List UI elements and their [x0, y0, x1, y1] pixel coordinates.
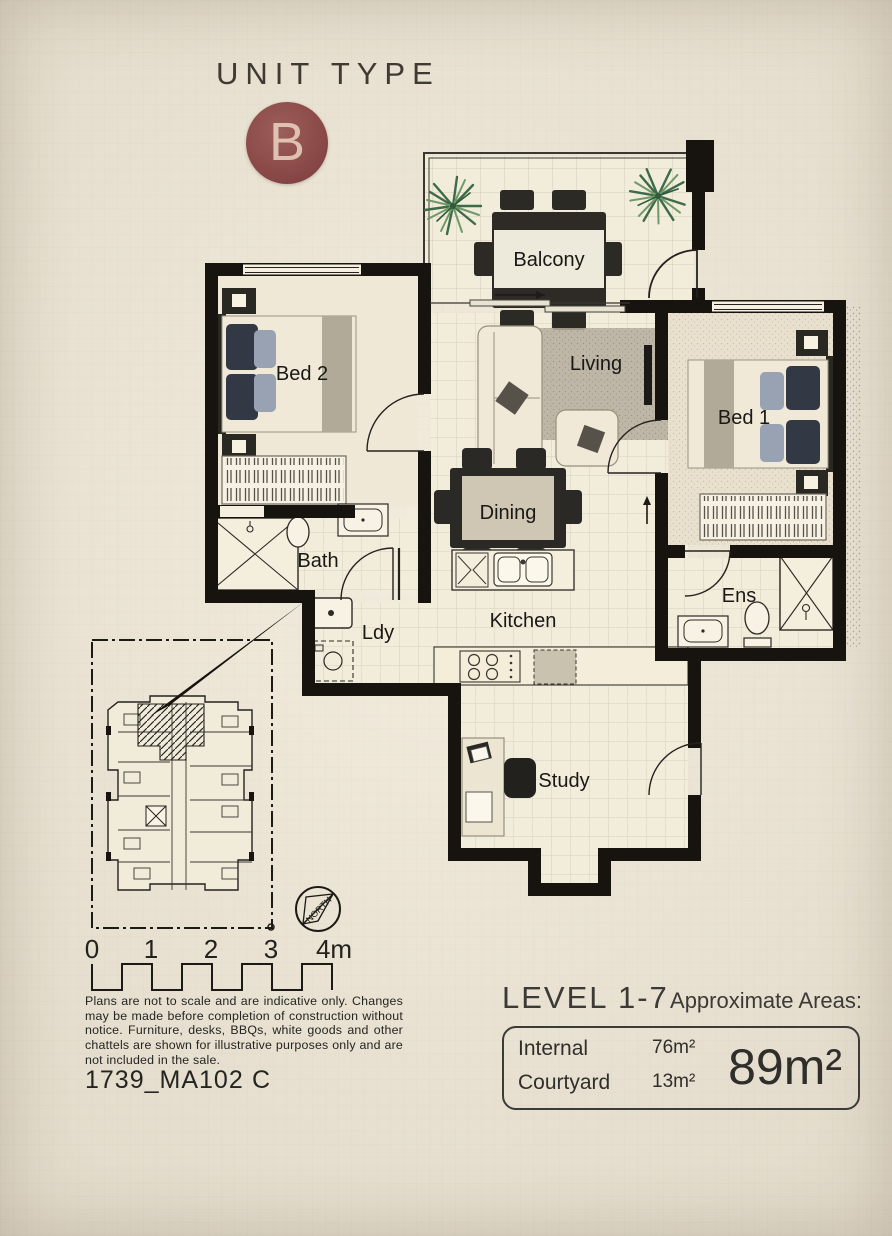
desk-chair — [504, 758, 536, 798]
pillow — [760, 372, 784, 410]
pillow — [254, 330, 276, 368]
pillow — [254, 374, 276, 412]
study-nook-floor — [541, 848, 598, 884]
double-sink — [494, 553, 552, 586]
dishwasher — [456, 553, 488, 587]
room-label-ens: Ens — [722, 585, 756, 607]
linen-niche — [220, 506, 264, 517]
pillow — [786, 366, 820, 410]
scale-bar: 0 1 2 3 4m — [85, 934, 352, 990]
key-plan-leader — [150, 601, 305, 716]
floor-plan-page: UNIT TYPE B — [0, 0, 892, 1236]
disclaimer-text: Plans are not to scale and are indicativ… — [85, 994, 403, 1067]
room-label-bed1: Bed 1 — [718, 407, 770, 429]
scale-bar-ruler — [92, 964, 332, 990]
room-label-kitchen: Kitchen — [490, 610, 557, 632]
area-row-label: Courtyard — [518, 1071, 610, 1095]
room-label-living: Living — [570, 353, 622, 375]
exterior-shadow — [846, 306, 861, 648]
bed1-furniture — [688, 330, 835, 540]
room-label-balcony: Balcony — [513, 249, 584, 271]
revision-letter: C — [252, 1066, 270, 1095]
pillow — [786, 420, 820, 464]
north-arrow-icon: NORTH — [296, 887, 340, 931]
area-row-value: 13m² — [652, 1071, 695, 1093]
room-label-dining: Dining — [480, 502, 537, 524]
fridge — [534, 650, 576, 684]
scale-tick: 0 — [85, 934, 99, 964]
toilet-cistern — [744, 638, 771, 647]
approximate-areas-heading: Approximate Areas: — [670, 988, 862, 1014]
toilet — [287, 517, 309, 547]
room-label-bath: Bath — [297, 550, 338, 572]
laptop — [466, 792, 492, 822]
room-label-ldy: Ldy — [362, 622, 394, 644]
tv — [644, 345, 652, 405]
areas-box: Internal 76m² Courtyard 13m² 89m² — [502, 1026, 860, 1110]
scale-tick: 3 — [264, 934, 278, 964]
pillow — [226, 324, 258, 370]
area-row-value: 76m² — [652, 1037, 695, 1059]
room-label-study: Study — [538, 770, 589, 792]
scale-tick: 4m — [316, 934, 352, 964]
scale-ticks: 0 1 2 3 4m — [85, 934, 352, 964]
scale-tick: 1 — [144, 934, 158, 964]
key-plan — [92, 601, 305, 930]
pillow — [226, 374, 258, 420]
bed2-furniture — [218, 288, 356, 504]
drawing-number: 1739_MA102 — [85, 1066, 244, 1095]
room-label-bed2: Bed 2 — [276, 363, 328, 385]
level-label: LEVEL 1-7 — [502, 980, 669, 1016]
area-row-label: Internal — [518, 1037, 588, 1061]
scale-tick: 2 — [204, 934, 218, 964]
pillow — [760, 424, 784, 462]
total-area: 89m² — [728, 1038, 842, 1096]
